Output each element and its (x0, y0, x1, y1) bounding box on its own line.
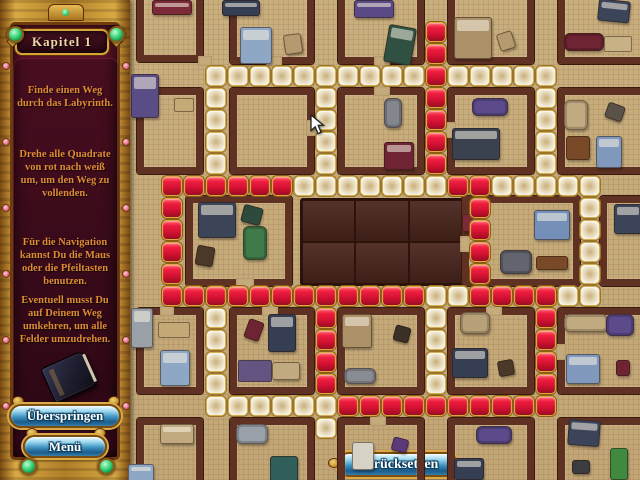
puzzle-tile-white[interactable] (492, 176, 512, 196)
map-bed (566, 354, 600, 384)
map-bed (268, 314, 296, 352)
gem-icon (122, 204, 130, 212)
map-door-gap (198, 56, 212, 66)
puzzle-tile-white[interactable] (206, 110, 226, 130)
puzzle-tile-red[interactable] (250, 286, 270, 306)
puzzle-tile-red[interactable] (316, 352, 336, 372)
gem-icon (2, 402, 10, 410)
gem-icon (2, 336, 10, 344)
game-window: Zurücksetzen Kapitel 1 Finde einen Weg d… (0, 0, 640, 480)
puzzle-tile-red[interactable] (470, 176, 490, 196)
gem-icon (2, 62, 10, 70)
map-bed (596, 136, 622, 168)
bed-pillow (569, 357, 597, 365)
gem-icon (122, 402, 130, 410)
puzzle-tile-white[interactable] (426, 352, 446, 372)
puzzle-tile-red[interactable] (426, 396, 446, 416)
puzzle-tile-red[interactable] (492, 286, 512, 306)
map-bed (454, 458, 484, 480)
puzzle-tile-white[interactable] (580, 242, 600, 262)
map-bed (160, 350, 190, 386)
map-door-gap (160, 306, 174, 316)
puzzle-tile-white[interactable] (316, 154, 336, 174)
map-table (536, 256, 568, 270)
puzzle-tile-white[interactable] (206, 132, 226, 152)
bed-pillow (457, 20, 489, 31)
map-couch (564, 314, 608, 332)
puzzle-tile-red[interactable] (448, 176, 468, 196)
puzzle-tile-white[interactable] (382, 176, 402, 196)
puzzle-tile-red[interactable] (514, 396, 534, 416)
puzzle-tile-white[interactable] (580, 198, 600, 218)
puzzle-tile-red[interactable] (470, 220, 490, 240)
gem-icon (122, 270, 130, 278)
map-bed (452, 128, 500, 160)
puzzle-tile-white[interactable] (536, 110, 556, 130)
map-bed (534, 210, 570, 240)
puzzle-tile-white[interactable] (360, 66, 380, 86)
map-bed (128, 464, 154, 480)
puzzle-tile-white[interactable] (206, 396, 226, 416)
puzzle-tile-red[interactable] (360, 286, 380, 306)
puzzle-tile-red[interactable] (382, 396, 402, 416)
puzzle-tile-red[interactable] (426, 22, 446, 42)
puzzle-tile-red[interactable] (514, 286, 534, 306)
map-room (338, 418, 424, 480)
map-couch (564, 100, 588, 130)
puzzle-tile-white[interactable] (580, 264, 600, 284)
gem-icon (122, 62, 130, 70)
map-bed (454, 17, 492, 59)
gem-icon (7, 26, 24, 43)
bed-pillow (455, 131, 497, 139)
map-couch (564, 33, 604, 51)
puzzle-tile-red[interactable] (316, 330, 336, 350)
puzzle-tile-red[interactable] (426, 66, 446, 86)
map-door-gap (460, 236, 470, 252)
puzzle-tile-red[interactable] (426, 44, 446, 64)
puzzle-tile-white[interactable] (206, 66, 226, 86)
puzzle-tile-white[interactable] (514, 176, 534, 196)
puzzle-tile-red[interactable] (382, 286, 402, 306)
puzzle-tile-white[interactable] (206, 374, 226, 394)
map-bed (240, 27, 272, 64)
map-rug (158, 322, 190, 338)
puzzle-tile-white[interactable] (206, 352, 226, 372)
building-roof-panel (355, 200, 408, 242)
map-couch (500, 250, 532, 274)
puzzle-tile-red[interactable] (206, 176, 226, 196)
bed-pillow (601, 2, 627, 10)
gem-icon (108, 26, 125, 43)
bed-pillow (155, 3, 189, 7)
building-roof-panel (409, 242, 462, 284)
bed-pillow (345, 317, 369, 326)
map-bed (452, 348, 488, 378)
puzzle-tile-white[interactable] (536, 132, 556, 152)
map-bed (222, 0, 260, 16)
puzzle-tile-white[interactable] (448, 286, 468, 306)
puzzle-tile-white[interactable] (558, 176, 578, 196)
puzzle-tile-red[interactable] (404, 286, 424, 306)
map-bed (131, 74, 159, 118)
puzzle-tile-white[interactable] (294, 396, 314, 416)
map-table (566, 136, 590, 160)
map-rug (238, 360, 272, 382)
map-door (610, 448, 628, 480)
puzzle-tile-red[interactable] (250, 176, 270, 196)
puzzle-tile-red[interactable] (470, 198, 490, 218)
puzzle-tile-white[interactable] (250, 396, 270, 416)
menu-button[interactable]: Menü (23, 435, 107, 458)
map-bed (198, 202, 236, 238)
puzzle-tile-red[interactable] (536, 396, 556, 416)
bed-pillow (457, 461, 481, 467)
puzzle-tile-red[interactable] (470, 242, 490, 262)
puzzle-tile-white[interactable] (316, 88, 336, 108)
puzzle-tile-white[interactable] (272, 66, 292, 86)
skip-button[interactable]: Überspringen (9, 404, 121, 428)
gem-icon (122, 138, 130, 146)
map-item (270, 456, 298, 480)
puzzle-tile-white[interactable] (404, 176, 424, 196)
puzzle-tile-red[interactable] (470, 286, 490, 306)
puzzle-tile-white[interactable] (536, 88, 556, 108)
building-roof-panel (302, 200, 355, 242)
puzzle-tile-red[interactable] (162, 198, 182, 218)
puzzle-tile-white[interactable] (448, 66, 468, 86)
puzzle-tile-white[interactable] (206, 330, 226, 350)
puzzle-tile-red[interactable] (470, 264, 490, 284)
puzzle-tile-red[interactable] (426, 154, 446, 174)
puzzle-tile-red[interactable] (184, 286, 204, 306)
puzzle-tile-white[interactable] (426, 308, 446, 328)
gem-icon (20, 458, 37, 475)
instruction-text: Drehe alle Quadrate von rot nach weiß um… (16, 148, 114, 200)
map-couch (472, 98, 508, 116)
puzzle-tile-white[interactable] (338, 66, 358, 86)
map-bed (597, 0, 631, 24)
puzzle-tile-red[interactable] (338, 396, 358, 416)
puzzle-tile-white[interactable] (558, 286, 578, 306)
puzzle-tile-white[interactable] (294, 176, 314, 196)
map-bed (354, 0, 394, 18)
mouse-cursor-icon (310, 114, 325, 136)
puzzle-tile-white[interactable] (250, 66, 270, 86)
map-bed (152, 0, 192, 15)
map-bed (614, 204, 640, 234)
building-roof-panel (355, 242, 408, 284)
chapter-title-plaque: Kapitel 1 (15, 29, 109, 55)
puzzle-tile-white[interactable] (228, 396, 248, 416)
instruction-text: Finde einen Weg durch das Labyrinth. (16, 84, 114, 110)
map-chair (194, 245, 215, 268)
puzzle-tile-red[interactable] (162, 286, 182, 306)
puzzle-tile-white[interactable] (580, 220, 600, 240)
puzzle-tile-red[interactable] (162, 242, 182, 262)
puzzle-tile-white[interactable] (580, 176, 600, 196)
puzzle-tile-white[interactable] (514, 66, 534, 86)
puzzle-tile-white[interactable] (536, 176, 556, 196)
map-couch (344, 368, 376, 384)
puzzle-tile-red[interactable] (294, 286, 314, 306)
puzzle-tile-red[interactable] (492, 396, 512, 416)
bed-pillow (134, 77, 156, 89)
puzzle-tile-red[interactable] (404, 396, 424, 416)
puzzle-tile-red[interactable] (360, 396, 380, 416)
frame-arch-ornament-icon (48, 4, 84, 21)
bed-pillow (599, 139, 619, 147)
puzzle-tile-white[interactable] (426, 176, 446, 196)
puzzle-tile-white[interactable] (316, 66, 336, 86)
map-door-gap (556, 344, 566, 360)
chapter-title: Kapitel 1 (32, 34, 92, 50)
map-couch (384, 98, 402, 128)
puzzle-tile-red[interactable] (426, 110, 446, 130)
puzzle-tile-white[interactable] (316, 176, 336, 196)
chapter-sidebar: Kapitel 1 Finde einen Weg durch das Laby… (0, 0, 130, 480)
puzzle-tile-white[interactable] (492, 66, 512, 86)
map-book (497, 359, 516, 378)
bed-pillow (455, 351, 485, 359)
gem-icon (2, 270, 10, 278)
puzzle-tile-red[interactable] (536, 286, 556, 306)
gem-icon (122, 336, 130, 344)
bed-pillow (390, 27, 413, 41)
map-bed (384, 142, 414, 170)
gem-icon (2, 204, 10, 212)
puzzle-tile-red[interactable] (272, 176, 292, 196)
puzzle-tile-white[interactable] (206, 88, 226, 108)
puzzle-tile-white[interactable] (426, 286, 446, 306)
bed-pillow (271, 317, 293, 327)
puzzle-tile-white[interactable] (294, 66, 314, 86)
bed-pillow (131, 467, 151, 471)
puzzle-tile-red[interactable] (536, 374, 556, 394)
puzzle-tile-white[interactable] (536, 66, 556, 86)
map-item (572, 460, 590, 474)
puzzle-tile-red[interactable] (184, 176, 204, 196)
puzzle-tile-white[interactable] (426, 374, 446, 394)
bed-pillow (134, 311, 150, 322)
bed-pillow (163, 427, 191, 432)
puzzle-tile-white[interactable] (470, 66, 490, 86)
puzzle-tile-white[interactable] (206, 154, 226, 174)
bed-pillow (357, 3, 391, 7)
puzzle-tile-red[interactable] (448, 396, 468, 416)
bed-pillow (225, 3, 257, 7)
building-roof-panel (409, 200, 462, 242)
puzzle-tile-red[interactable] (228, 286, 248, 306)
puzzle-tile-white[interactable] (382, 66, 402, 86)
puzzle-tile-red[interactable] (162, 176, 182, 196)
map-rug (604, 36, 632, 52)
puzzle-tile-white[interactable] (580, 286, 600, 306)
map-couch (476, 426, 512, 444)
instruction-text: Eventuell musst Du auf Deinem Weg umkehr… (16, 294, 114, 346)
puzzle-tile-white[interactable] (360, 176, 380, 196)
puzzle-tile-red[interactable] (316, 286, 336, 306)
puzzle-tile-red[interactable] (316, 308, 336, 328)
map-couch (236, 424, 268, 444)
puzzle-tile-red[interactable] (536, 352, 556, 372)
puzzle-tile-red[interactable] (162, 264, 182, 284)
building-roof-panel (302, 242, 355, 284)
puzzle-tile-white[interactable] (272, 396, 292, 416)
bed-pillow (571, 422, 597, 431)
map-door-gap (370, 416, 386, 426)
map-couch (606, 314, 634, 336)
instruction-text: Für die Navigation kannst Du die Maus od… (16, 236, 114, 288)
bed-pillow (243, 30, 269, 40)
bed-pillow (201, 205, 233, 215)
map-bed (342, 314, 372, 348)
map-door-gap (374, 86, 390, 96)
puzzle-tile-white[interactable] (338, 176, 358, 196)
map-bed (567, 419, 601, 447)
puzzle-tile-white[interactable] (316, 418, 336, 438)
puzzle-tile-white[interactable] (316, 396, 336, 416)
bed-pillow (537, 213, 567, 221)
puzzle-tile-white[interactable] (536, 154, 556, 174)
map-chair (283, 33, 304, 55)
map-item (352, 442, 374, 470)
puzzle-tile-red[interactable] (426, 132, 446, 152)
puzzle-tile-red[interactable] (228, 176, 248, 196)
puzzle-tile-white[interactable] (228, 66, 248, 86)
puzzle-tile-red[interactable] (470, 396, 490, 416)
map-rug (174, 98, 194, 112)
puzzle-tile-white[interactable] (206, 308, 226, 328)
map-couch (460, 312, 490, 334)
map-bed (131, 308, 153, 348)
bed-pillow (387, 145, 411, 152)
map-couch (243, 226, 267, 260)
map-chair (272, 362, 300, 380)
puzzle-tile-red[interactable] (536, 330, 556, 350)
map-item (616, 360, 630, 376)
bed-pillow (617, 207, 639, 215)
puzzle-tile-red[interactable] (316, 374, 336, 394)
puzzle-tile-red[interactable] (162, 220, 182, 240)
gem-icon (98, 458, 115, 475)
center-building (300, 198, 464, 286)
puzzle-tile-red[interactable] (426, 88, 446, 108)
map-bed (160, 424, 194, 444)
map-room (230, 88, 314, 174)
puzzle-tile-red[interactable] (206, 286, 226, 306)
puzzle-tile-red[interactable] (536, 308, 556, 328)
bed-pillow (163, 353, 187, 363)
gem-icon (2, 138, 10, 146)
puzzle-tile-red[interactable] (338, 286, 358, 306)
puzzle-tile-white[interactable] (426, 330, 446, 350)
puzzle-tile-red[interactable] (272, 286, 292, 306)
puzzle-tile-white[interactable] (404, 66, 424, 86)
